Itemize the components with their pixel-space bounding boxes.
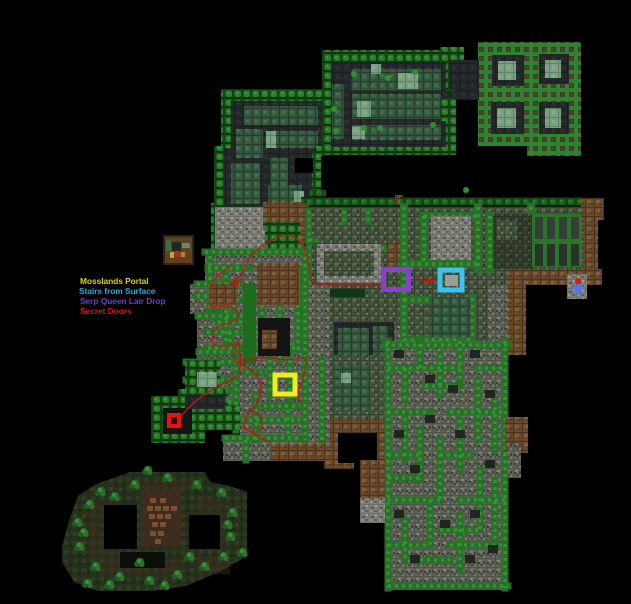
svg-text:Serp Queen Lair Drop: Serp Queen Lair Drop [80,296,166,306]
svg-text:Secret Doors: Secret Doors [80,306,132,316]
svg-text:Mosslands Portal: Mosslands Portal [80,276,149,286]
svg-text:Stairs from Surface: Stairs from Surface [79,286,156,296]
